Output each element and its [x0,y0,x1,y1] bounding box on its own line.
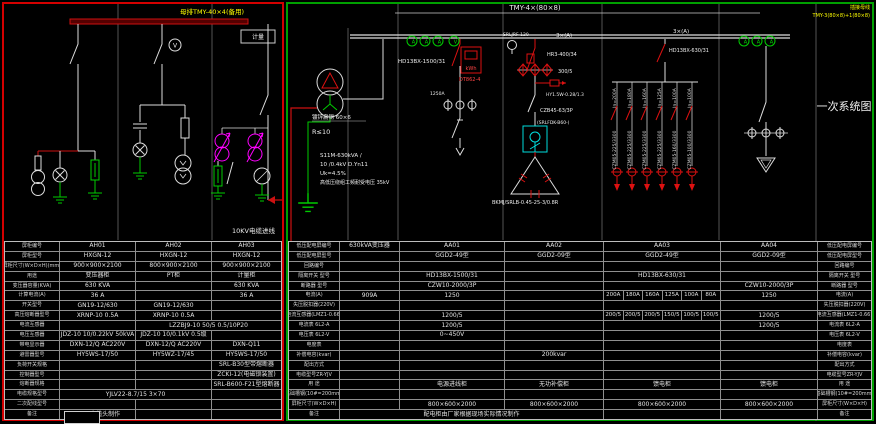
table-cell [59,371,135,380]
table-row-label: 备注 [289,410,339,419]
table-cell: HXGN-12 [211,252,281,261]
table-cell [59,400,135,409]
table-cell: 900×900×2100 [59,262,135,271]
table-subcell: 100A [681,291,701,300]
table-cell: 200kvar [504,351,603,360]
table-row-label: 用 途 [817,380,871,389]
table-cell: 800×600×2000 [399,400,504,409]
table-row-label: 带电显示器 [5,341,59,350]
table-row: 低压配电屏型号GGD2-49型GGD2-09型GGD2-49型GGD2-09型低… [289,251,871,261]
table-row: 隔离开关 型号HD13BX-1500/31HD13BX-630/31隔离开关 型… [289,271,871,281]
table-cell [399,390,504,399]
table-cell [339,371,399,380]
table-row: 负荷开关规格SRL-B30型带熔断器 [5,360,281,370]
table-row-label: 屏柜尺寸(W×D×H) [289,400,339,409]
table-row-label: 电流互感器 [5,321,59,330]
table-row-label: 高压熔断器型号 [5,311,59,320]
table-cell: 1200/5 [399,311,504,320]
table-subcell: 200A [604,291,623,300]
table-row: 屏柜尺寸(W×D×H)(mm)900×900×2100800×900×21009… [5,261,281,271]
table-cell: 馈电柜 [603,380,720,389]
lv-spec-table: 低压配电屏编号630kVA变压器AA01AA02AA03AA04低压配电屏编号低… [288,241,872,420]
table-cell [720,331,817,340]
table-row: 基础槽钢(10#=200mm)基础槽钢(10#=200mm) [289,389,871,399]
table-cell: AA02 [504,242,603,251]
table-row-label: 隔离开关 型号 [817,272,871,281]
table-cell: JDZ-10 10/0.1kV 0.5级 [135,331,211,340]
table-cell [211,331,281,340]
table-row-label: 二次配线型号 [5,400,59,409]
table-cell [135,291,211,300]
table-row-label: 避雷器型号 [5,351,59,360]
table-row-label: 回路编号 [289,262,339,271]
table-cell [603,341,720,350]
table-row: 低压配电屏编号630kVA变压器AA01AA02AA03AA04低压配电屏编号 [289,242,871,251]
table-cell: HY5WS-17/50 [211,351,281,360]
table-cell [339,390,399,399]
table-row: 电缆规格型号YJLV22-8.7/15 3×70 [5,389,281,399]
table-row-label: 失压脱扣器(220V) [289,301,339,310]
table-cell [399,361,504,370]
table-cell [720,272,817,281]
table-cell: 909A [339,291,399,300]
table-cell: HD13BX-630/31 [603,272,720,281]
table-cell [603,390,720,399]
table-row: 补偿电容(kvar)200kvar补偿电容(kvar) [289,350,871,360]
table-row-label: 电流互感器(LMZ1-0.66) [289,311,339,320]
table-cell [504,282,603,291]
table-row-label: 电压表 6L2-V [289,331,339,340]
table-subcell: 200/5 [623,311,643,320]
table-row-label: 屏柜编号 [5,242,59,251]
table-cell: GGD2-09型 [504,252,603,261]
table-subcell: 125A [662,291,682,300]
table-cell: 630 KVA [211,282,281,291]
table-cell [211,311,281,320]
table-cell: HD13BX-1500/31 [399,272,504,281]
table-subcell: 100/5 [701,311,721,320]
table-cell [603,361,720,370]
table-row-label: 备注 [817,410,871,419]
table-row: 备注配电柜由厂家根据现场实际情况制作备注 [289,409,871,419]
table-cell [211,410,281,419]
table-row-label: 低压配电屏编号 [289,242,339,251]
table-cell: 800×600×2000 [720,400,817,409]
table-row-label: 负荷开关规格 [5,361,59,370]
table-cell [720,351,817,360]
table-cell: JDZ-10 10/0.22kV 50kVA [59,331,135,340]
table-cell [504,272,603,281]
table-cell: 200/5200/5200/5150/5100/5100/5 [603,311,720,320]
table-row-label: 低压配电屏型号 [289,252,339,261]
table-cell [720,410,817,419]
table-row: 回路编号回路编号 [289,261,871,271]
table-row-label: 电度表 [289,341,339,350]
table-cell: GN19-12/630 [135,301,211,310]
table-row-label: 电压表 6L2-V [817,331,871,340]
table-row-label: 电流互感器(LMZ1-0.66) [817,311,871,320]
table-row-label: 失压脱扣器(220V) [817,301,871,310]
table-cell [59,361,135,370]
table-row-label: 回路编号 [817,262,871,271]
table-row: 带电显示器DXN-12/Q AC220VDXN-12/Q AC220VDXN-Q… [5,340,281,350]
table-row: 熔断器规格SRL-B600-F21型熔断器 [5,379,281,389]
table-cell [504,371,603,380]
table-row-label: 变压器容量(KVA) [5,282,59,291]
table-cell: 电源进线柜 [399,380,504,389]
table-row-label: 基础槽钢(10#=200mm) [289,390,339,399]
table-row-label: 补偿电容(kvar) [289,351,339,360]
table-cell [603,331,720,340]
table-cell [339,341,399,350]
table-row: 变压器容量(KVA)630 KVA630 KVA [5,281,281,291]
table-cell: GGD2-49型 [603,252,720,261]
table-cell [339,361,399,370]
table-row: 配出方式配出方式 [289,360,871,370]
table-row: 控制器型号ZCKI-12(电磁锁装置) [5,370,281,380]
table-row: 计算电流(A)36 A36 A [5,290,281,300]
table-cell [720,341,817,350]
table-row: 电缆型号ZR-YJV电缆型号ZR-YJV [289,370,871,380]
table-row: 电压互感器JDZ-10 10/0.22kV 50kVAJDZ-10 10/0.1… [5,330,281,340]
table-row: 用 途电源进线柜无功补偿柜馈电柜馈电柜用 途 [289,379,871,389]
table-cell: CZW10-2000/3P [720,282,817,291]
table-row-label: 电缆型号ZR-YJV [817,371,871,380]
table-cell: 1250 [399,291,504,300]
table-cell [339,321,399,330]
table-row-label: 电流表 6L2-A [289,321,339,330]
table-cell [135,282,211,291]
table-row: 用途变压器柜PT柜计量柜 [5,271,281,281]
table-row-label: 隔离开关 型号 [289,272,339,281]
table-row-label: 基础槽钢(10#=200mm) [817,390,871,399]
table-cell: GGD2-49型 [399,252,504,261]
table-cell [720,262,817,271]
table-cell [135,361,211,370]
table-cell: LZZBJ9-10 50/5 0.5/10P20 [135,321,281,330]
table-row-label: 用 途 [289,380,339,389]
table-row: 备注10kV电缆头制作 [5,409,281,419]
table-cell: 馈电柜 [720,380,817,389]
table-row: 开关型号GN19-12/630GN19-12/630 [5,300,281,310]
table-cell [59,321,135,330]
table-cell: SRL-B600-F21型熔断器 [211,380,281,389]
table-row: 高压熔断器型号XRNP-10 0.5AXRNP-10 0.5A [5,310,281,320]
table-cell [603,321,720,330]
table-row-label: 电流(A) [817,291,871,300]
table-row-label: 用途 [5,272,59,281]
table-cell [135,380,211,389]
table-row-label: 电压互感器 [5,331,59,340]
table-row-label: 电流(A) [289,291,339,300]
table-row-label: 屏柜型号 [5,252,59,261]
table-subcell: 80A [701,291,721,300]
table-row-label: 控制器型号 [5,371,59,380]
table-cell: DXN-12/Q AC220V [135,341,211,350]
table-cell: 1200/5 [720,321,817,330]
table-cell: GN19-12/630 [59,301,135,310]
table-row-label: 开关型号 [5,301,59,310]
table-row: 电流互感器LZZBJ9-10 50/5 0.5/10P20 [5,320,281,330]
table-cell: HXGN-12 [59,252,135,261]
hv-spec-table: 屏柜编号AH01AH02AH03屏柜型号HXGN-12HXGN-12HXGN-1… [4,241,282,420]
table-row: 二次配线型号 [5,399,281,409]
table-cell: 1200/5 [399,321,504,330]
table-cell [59,380,135,389]
table-cell: 630kVA变压器 [339,242,399,251]
table-cell: 800×600×2000 [603,400,720,409]
table-cell [339,380,399,389]
table-cell: XRNP-10 0.5A [135,311,211,320]
table-cell: 800×600×2000 [504,400,603,409]
table-row: 电流(A)909A1250200A180A160A125A100A80A1250… [289,290,871,300]
table-cell [339,331,399,340]
table-cell: DXN-12/Q AC220V [59,341,135,350]
table-cell [339,282,399,291]
table-row-label: 电度表 [817,341,871,350]
table-row-label: 电缆规格型号 [5,390,59,399]
table-cell: DXN-Q11 [211,341,281,350]
table-row: 屏柜编号AH01AH02AH03 [5,242,281,251]
table-cell: AA01 [399,242,504,251]
table-subcell: 160A [642,291,662,300]
table-cell [135,410,211,419]
table-subcell: 200/5 [604,311,623,320]
table-cell: AH03 [211,242,281,251]
table-cell: 1250 [720,291,817,300]
table-cell: HXGN-12 [135,252,211,261]
table-cell [135,400,211,409]
table-cell [399,341,504,350]
table-cell [603,301,720,310]
table-row-label: 备注 [5,410,59,419]
table-row-label: 低压配电屏编号 [817,242,871,251]
table-cell: PT柜 [135,272,211,281]
table-cell [720,301,817,310]
table-cell: AH02 [135,242,211,251]
table-cell [603,410,720,419]
table-cell: 800×900×2100 [135,262,211,271]
table-cell [504,321,603,330]
table-cell [211,400,281,409]
table-cell [399,262,504,271]
table-cell: 变压器柜 [59,272,135,281]
table-cell: 630 KVA [59,282,135,291]
table-subcell: 200/5 [642,311,662,320]
table-row-label: 配出方式 [817,361,871,370]
table-row-label: 补偿电容(kvar) [817,351,871,360]
table-cell [720,390,817,399]
table-cell: 36 A [59,291,135,300]
table-cell [603,351,720,360]
table-row: 电流互感器(LMZ1-0.66)1200/5200/5200/5200/5150… [289,310,871,320]
table-cell [339,252,399,261]
table-cell [720,371,817,380]
table-cell [339,311,399,320]
table-cell [211,390,281,399]
table-row-label: 配出方式 [289,361,339,370]
table-row-label: 断路器 型号 [289,282,339,291]
table-cell [504,262,603,271]
table-cell [603,371,720,380]
table-cell: AA04 [720,242,817,251]
table-cell [339,400,399,409]
table-row: 电压表 6L2-V0~450V电压表 6L2-V [289,330,871,340]
table-row-label: 屏柜尺寸(W×D×H) [817,400,871,409]
table-subcell: 100/5 [681,311,701,320]
table-row: 断路器 型号CZW10-2000/3PCZW10-2000/3P断路器 型号 [289,281,871,291]
table-cell [504,311,603,320]
table-cell [339,262,399,271]
table-cell: 配电柜由厂家根据现场实际情况制作 [339,410,603,419]
table-row: 电流表 6L2-A1200/51200/5电流表 6L2-A [289,320,871,330]
table-row-label: 计算电流(A) [5,291,59,300]
table-cell: 计量柜 [211,272,281,281]
table-cell: YJLV22-8.7/15 3×70 [59,390,211,399]
table-cell [399,301,504,310]
table-row-label: 熔断器规格 [5,380,59,389]
table-cell: HY5WZ-17/45 [135,351,211,360]
table-cell [603,282,720,291]
table-cell [399,371,504,380]
table-cell: HY5WS-17/50 [59,351,135,360]
table-cell: ZCKI-12(电磁锁装置) [211,371,281,380]
table-cell: 900×900×2100 [211,262,281,271]
table-row: 避雷器型号HY5WS-17/50HY5WZ-17/45HY5WS-17/50 [5,350,281,360]
table-cell [339,272,399,281]
table-cell: 36 A [211,291,281,300]
table-cell [504,390,603,399]
table-cell: CZW10-2000/3P [399,282,504,291]
table-cell: GGD2-09型 [720,252,817,261]
table-cell: 1200/5 [720,311,817,320]
table-cell: SRL-B30型带熔断器 [211,361,281,370]
table-cell: 0~450V [399,331,504,340]
table-cell [720,361,817,370]
table-cell [504,341,603,350]
table-row-label: 断路器 型号 [817,282,871,291]
table-row: 失压脱扣器(220V)失压脱扣器(220V) [289,300,871,310]
table-cell [339,351,399,360]
table-row: 电度表电度表 [289,340,871,350]
table-row-label: 电流表 6L2-A [817,321,871,330]
table-cell [135,371,211,380]
table-subcell: 180A [623,291,643,300]
table-cell: 200A180A160A125A100A80A [603,291,720,300]
table-row-label: 屏柜尺寸(W×D×H)(mm) [5,262,59,271]
table-row-label: 电缆型号ZR-YJV [289,371,339,380]
table-cell: XRNP-10 0.5A [59,311,135,320]
table-cell: 无功补偿柜 [504,380,603,389]
table-row-label: 低压配电屏型号 [817,252,871,261]
table-cell [504,361,603,370]
table-cell: AH01 [59,242,135,251]
table-cell [211,301,281,310]
title-block-stub [64,411,100,424]
table-subcell: 150/5 [662,311,682,320]
table-row: 屏柜尺寸(W×D×H)800×600×2000800×600×2000800×6… [289,399,871,409]
table-cell [603,262,720,271]
table-cell: AA03 [603,242,720,251]
table-cell [504,291,603,300]
table-cell [399,351,504,360]
table-cell [504,301,603,310]
table-cell [504,331,603,340]
table-cell [339,301,399,310]
table-row: 屏柜型号HXGN-12HXGN-12HXGN-12 [5,251,281,261]
